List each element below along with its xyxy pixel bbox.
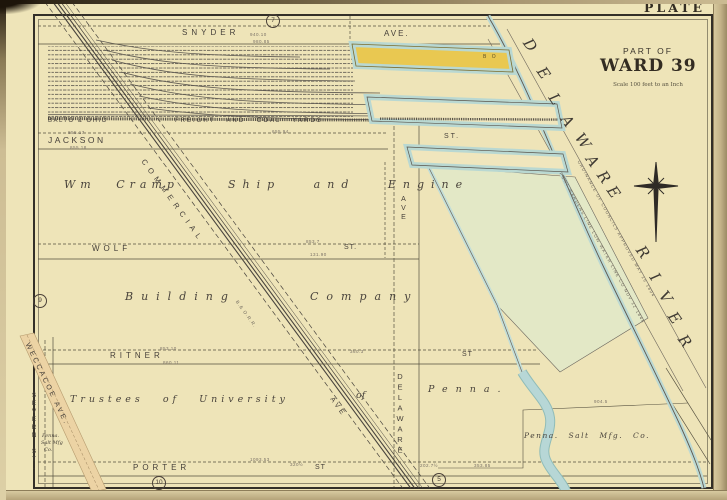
owner-salt-left-2: Salt Mfg (41, 441, 63, 446)
dim: 131.90 (310, 253, 327, 258)
atlas-page: PLATE 8 PART OF WARD 39 Scale 100 feet t… (0, 0, 727, 500)
street-snyder: SNYDER (182, 29, 239, 37)
title-scale: Scale 100 feet to an Inch (598, 83, 698, 89)
street-porter-st: ST (315, 464, 326, 471)
title-ward: WARD 39 (600, 58, 696, 75)
plate-number: PLATE 8 (644, 2, 724, 15)
dim: 853.7 (306, 240, 320, 245)
yards-freight-coal: FREIGHT AND COAL YARDS (175, 118, 323, 124)
dim: 860.11 (163, 361, 179, 366)
pier-building-label: B O (483, 55, 498, 60)
dim: 855.18 (70, 146, 87, 151)
owner-salt-right: Penna. Salt Mfg. Co. (524, 432, 650, 440)
street-pier-st: ST. (444, 133, 460, 140)
street-delaware: DELAWARE (396, 372, 404, 456)
owner-cramp-1a: Wm Cramp (64, 179, 179, 190)
owner-trustees-c: Penna. (428, 385, 509, 395)
owner-trustees-b: of (356, 391, 365, 401)
plate-ref-bottom-right: 5 (432, 473, 446, 487)
plate-ref-left: 9 (33, 294, 47, 308)
street-porter: PORTER (133, 464, 190, 472)
dim: 855.17 (68, 131, 85, 136)
dim: 853.10 (160, 347, 177, 352)
dim: 320½ (290, 463, 303, 468)
dim: 980.85 (253, 40, 270, 45)
street-wolf: WOLF (92, 245, 131, 253)
title-part-of: PART OF (612, 47, 684, 56)
dim: 353.85 (474, 464, 491, 469)
compass-rose (634, 162, 678, 242)
plate-ref-top: 7 (266, 14, 280, 28)
pier-2 (367, 97, 562, 128)
street-jackson: JACKSON (48, 136, 106, 145)
street-severn: SEVERN ST. (30, 392, 37, 472)
dim: 655.94 (272, 130, 289, 135)
owner-salt-left-1: Penna. (42, 434, 59, 439)
street-ritner-st: ST (462, 351, 473, 358)
dim: 360.3 (350, 350, 364, 355)
owner-cramp-2b: Company (310, 291, 418, 302)
dim: 1093.53 (250, 458, 270, 463)
street-ritner: RITNER (110, 352, 164, 360)
piers (352, 44, 568, 172)
owner-trustees-a: Trustees of University (70, 395, 289, 405)
owner-salt-left-3: Co. (44, 448, 52, 453)
street-wolf-st: ST. (344, 244, 357, 251)
dim: 904.5 (594, 400, 608, 405)
owner-cramp-1b: Ship and Engine (228, 179, 469, 190)
dim: 202.7½ (420, 464, 438, 469)
owner-cramp-2a: Building (125, 291, 236, 302)
yards-balto-ohio: BALTO & OHIO (48, 118, 108, 124)
street-delaware-ave: AVE (400, 196, 407, 223)
street-snyder-ave: AVE. (384, 30, 410, 38)
dim: 940.10 (250, 33, 267, 38)
plate-ref-bottom-left: 10 (152, 476, 166, 490)
